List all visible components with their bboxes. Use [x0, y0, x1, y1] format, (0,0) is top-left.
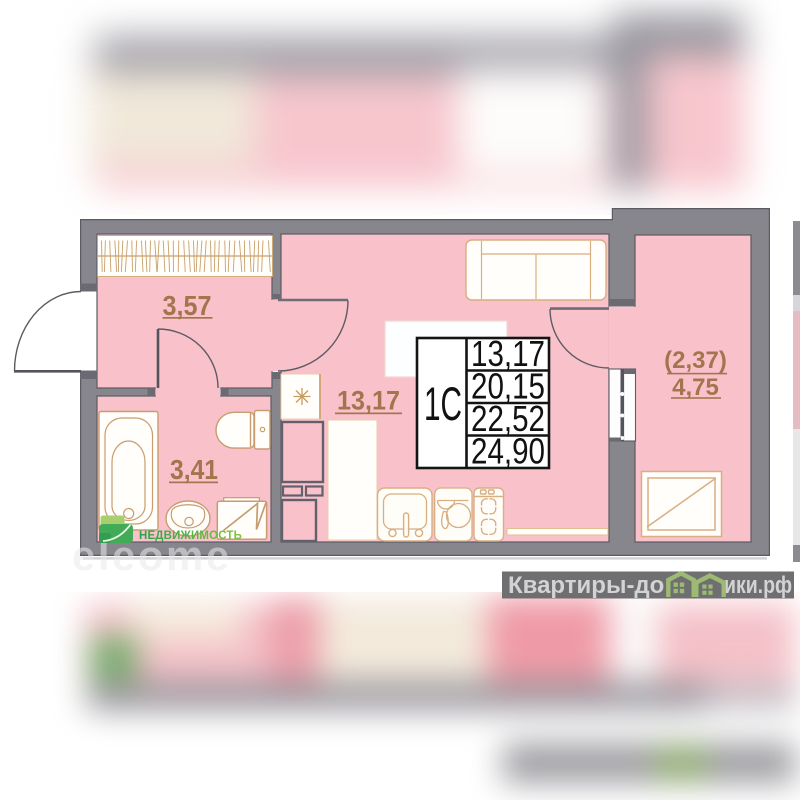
- svg-text:Квартиры-до: Квартиры-до: [508, 572, 664, 599]
- svg-text:3,57: 3,57: [163, 290, 212, 321]
- svg-text:24,90: 24,90: [471, 431, 545, 472]
- svg-text:3,41: 3,41: [170, 454, 218, 485]
- svg-text:НЕДВИЖИМОСТЬ: НЕДВИЖИМОСТЬ: [139, 528, 242, 542]
- svg-text:13,17: 13,17: [337, 386, 400, 416]
- svg-text:4,75: 4,75: [672, 374, 719, 401]
- svg-text:ики.рф: ики.рф: [724, 572, 792, 599]
- svg-text:1С: 1С: [424, 377, 462, 430]
- svg-text:(2,37): (2,37): [664, 347, 727, 374]
